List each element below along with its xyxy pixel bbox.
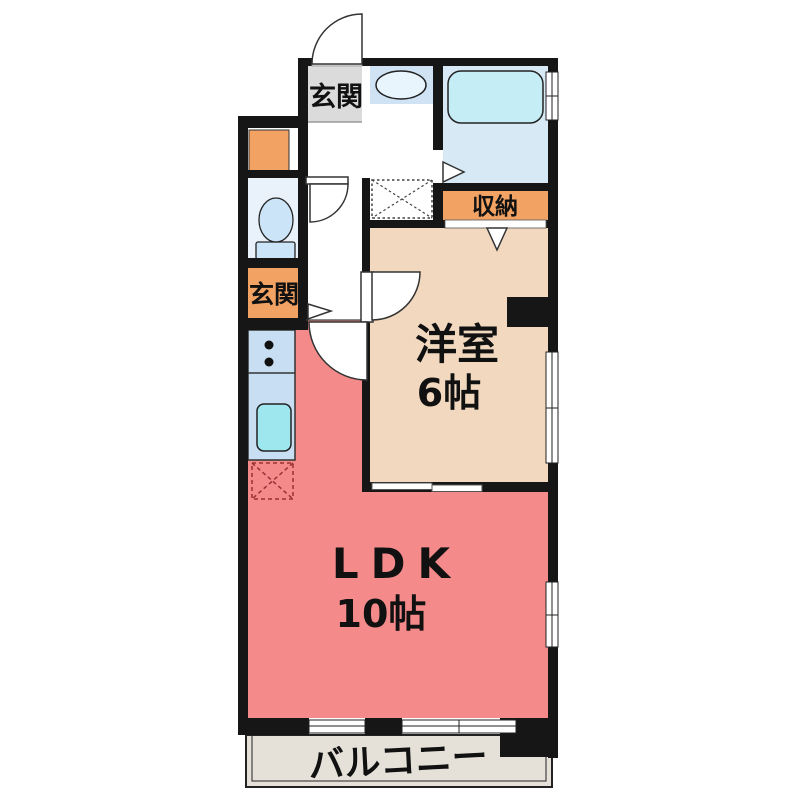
shoe-cabinet — [249, 130, 289, 174]
entrance-side-label: 玄関 — [249, 280, 299, 309]
western-room-label: 洋室 — [415, 320, 499, 369]
entrance-top-label: 玄関 — [309, 81, 363, 113]
toilet-tank — [256, 242, 295, 259]
western-room-door-leaf — [361, 272, 373, 322]
ldk-size: 10帖 — [336, 592, 427, 636]
stove-burner-1 — [265, 341, 274, 350]
ldk-label: LDK — [332, 539, 462, 588]
floor-plan-drawing: 玄関 玄関 収納 洋室 6帖 LDK 10帖 バルコニー — [0, 0, 800, 800]
washing-machine-space — [372, 180, 432, 218]
closet-label: 収納 — [472, 193, 518, 220]
stove-burner-2 — [265, 358, 274, 367]
washbasin-bowl — [376, 71, 426, 99]
floor-plan-page: 玄関 玄関 収納 洋室 6帖 LDK 10帖 バルコニー — [0, 0, 800, 800]
kitchen-sink — [257, 404, 291, 451]
toilet-door-leaf — [306, 177, 348, 184]
toilet-bowl — [259, 198, 293, 242]
western-room-size: 6帖 — [417, 371, 481, 415]
bathtub — [448, 71, 543, 123]
closet-door-band — [445, 220, 546, 228]
